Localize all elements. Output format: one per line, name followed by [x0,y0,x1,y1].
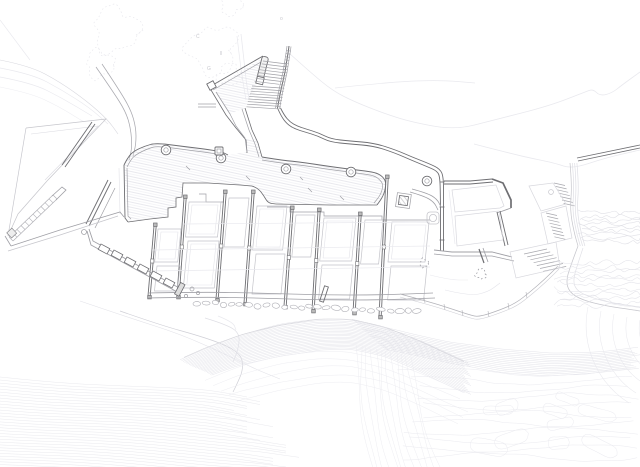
svg-text:C: C [196,34,200,40]
svg-text:o: o [280,16,283,22]
svg-text:G: G [207,66,211,72]
svg-text:ll: ll [220,51,222,57]
